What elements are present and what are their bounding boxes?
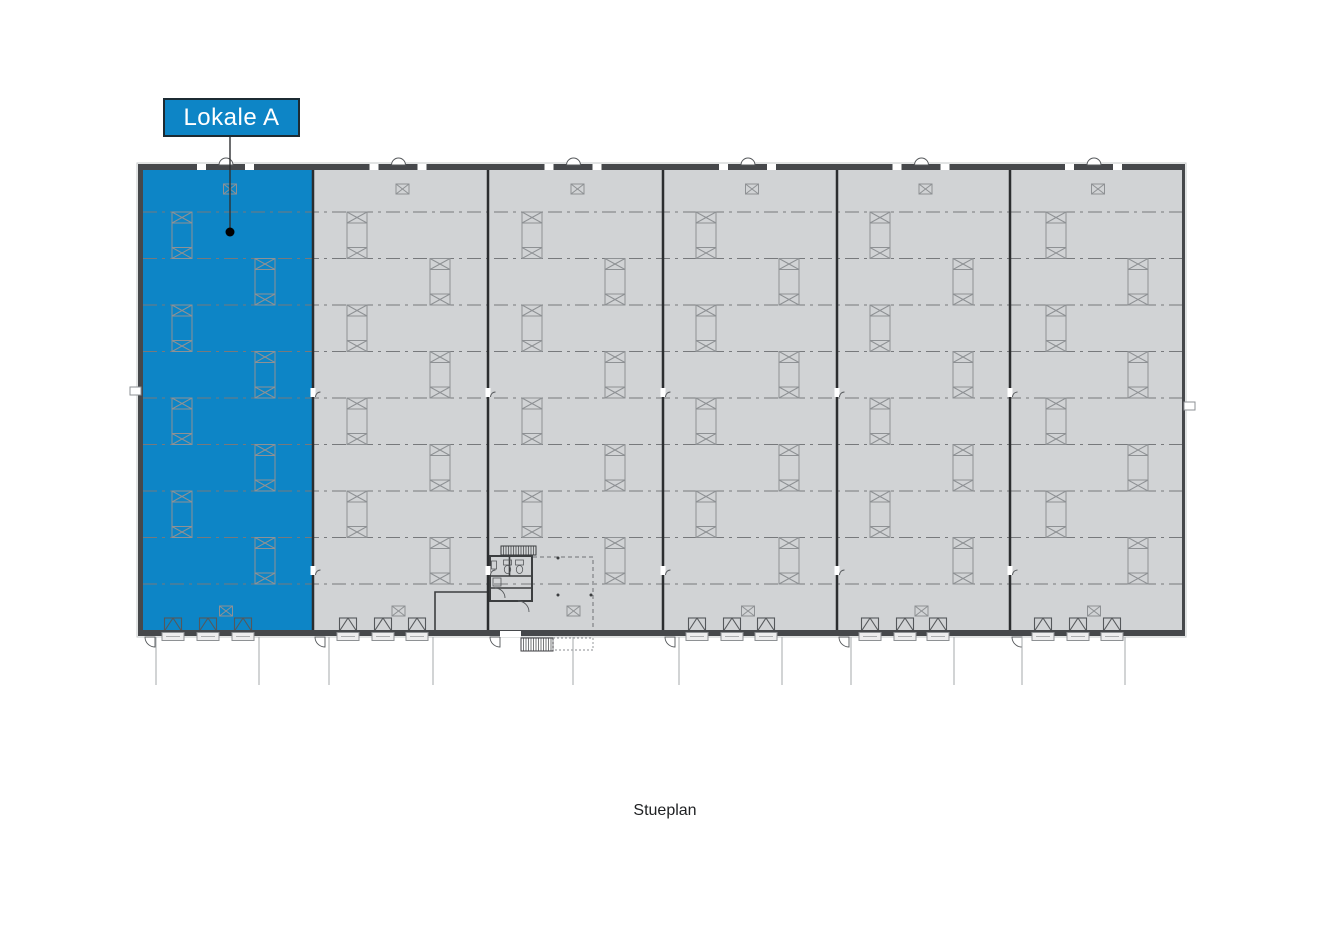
plan-caption: Stueplan: [565, 802, 765, 820]
lokale-a-area[interactable]: [143, 170, 313, 630]
exterior-stair: [521, 638, 593, 651]
lokale-a-label[interactable]: Lokale A: [163, 98, 300, 137]
lokale-a-label-text: Lokale A: [183, 104, 279, 132]
leader-dot: [226, 228, 235, 237]
site-lines: [156, 637, 1125, 685]
plan-canvas: Lokale A Stueplan: [0, 0, 1330, 949]
